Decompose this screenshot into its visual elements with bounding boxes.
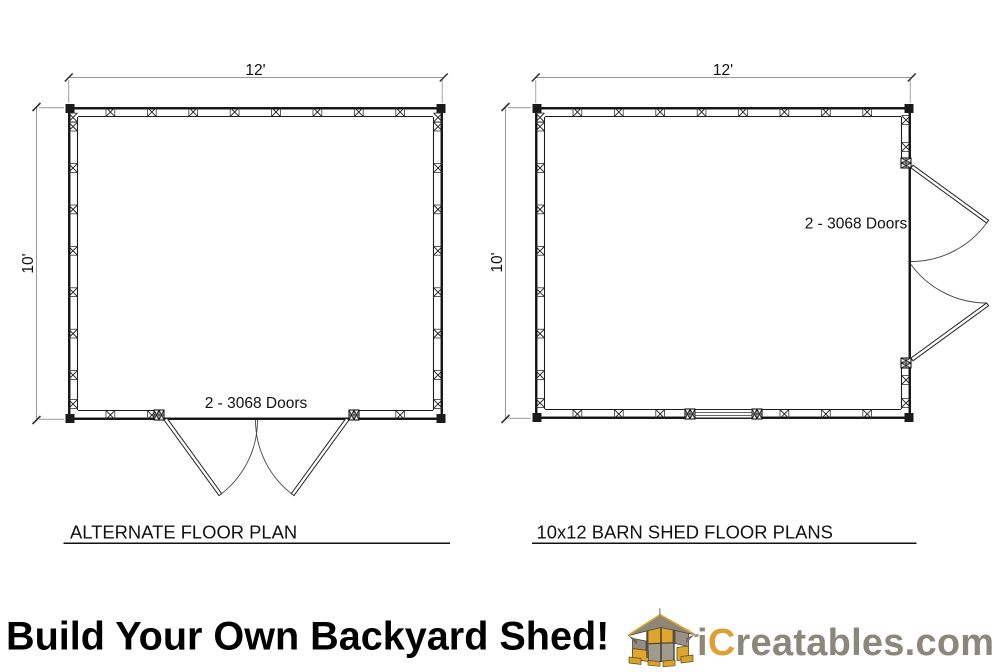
svg-text:10x12 BARN SHED FLOOR PLANS: 10x12 BARN SHED FLOOR PLANS (537, 522, 833, 543)
svg-text:2 - 3068 Doors: 2 - 3068 Doors (205, 395, 308, 412)
svg-text:10': 10' (489, 252, 506, 272)
svg-text:iCreatables.com: iCreatables.com (697, 622, 994, 664)
svg-text:12': 12' (245, 62, 265, 79)
svg-text:12': 12' (713, 62, 733, 79)
svg-text:2 - 3068 Doors: 2 - 3068 Doors (805, 216, 908, 233)
svg-text:Build Your Own Backyard Shed!: Build Your Own Backyard Shed! (6, 615, 609, 659)
svg-text:10': 10' (20, 253, 37, 273)
svg-text:ALTERNATE FLOOR PLAN: ALTERNATE FLOOR PLAN (70, 522, 297, 543)
